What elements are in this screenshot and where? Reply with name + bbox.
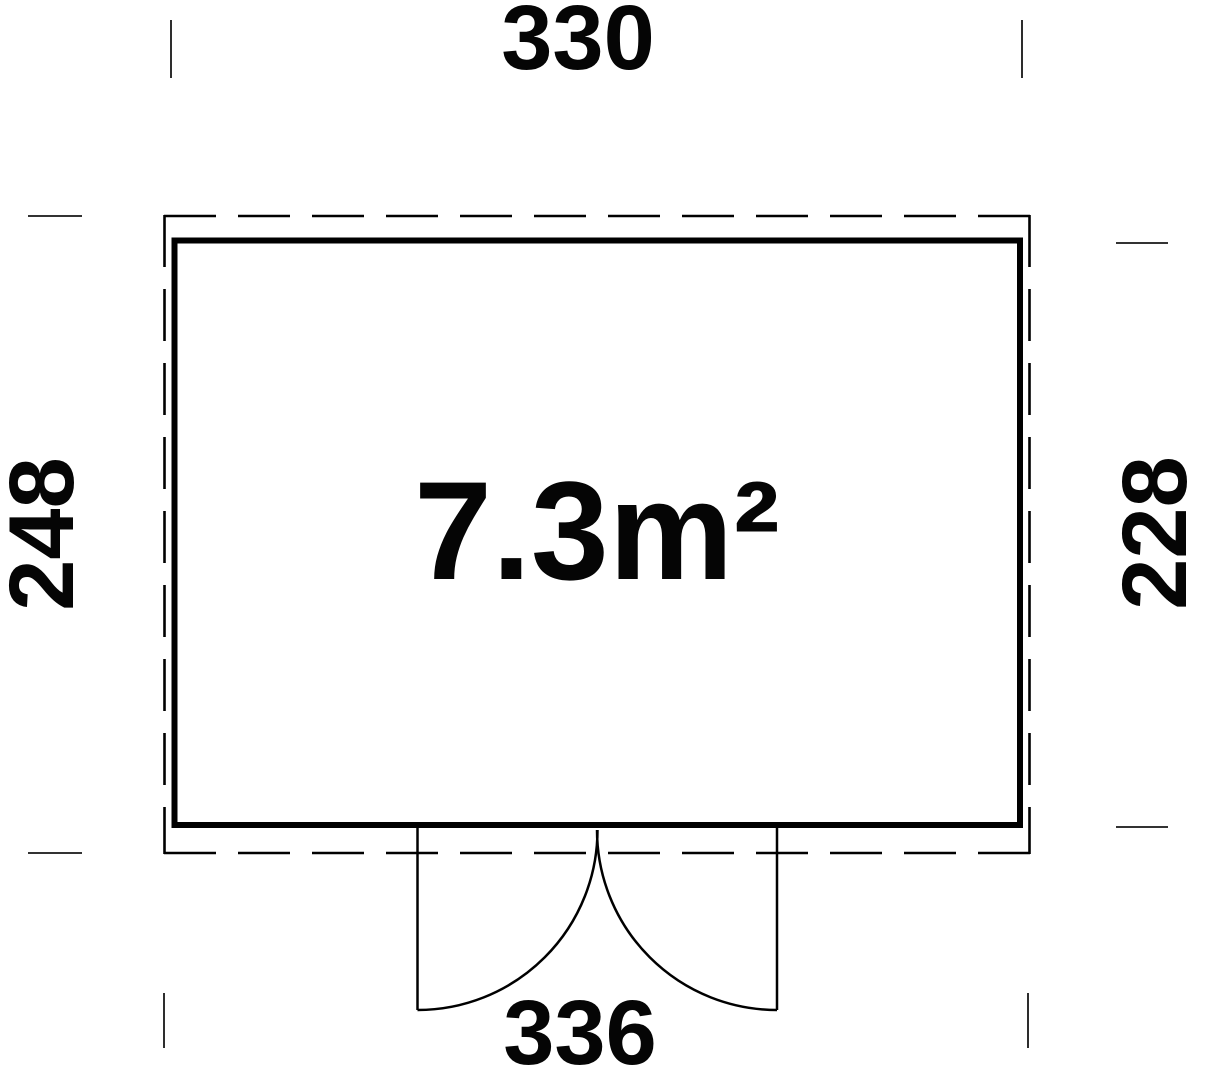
area-label: 7.3m²: [414, 461, 780, 601]
dimension-label-right: 228: [1109, 456, 1201, 610]
dimension-label-top: 330: [501, 0, 655, 84]
dimension-label-left: 248: [0, 457, 88, 611]
floor-plan-canvas: 330 336 248 228 7.3m²: [0, 0, 1214, 1079]
dimension-label-bottom: 336: [503, 987, 657, 1079]
